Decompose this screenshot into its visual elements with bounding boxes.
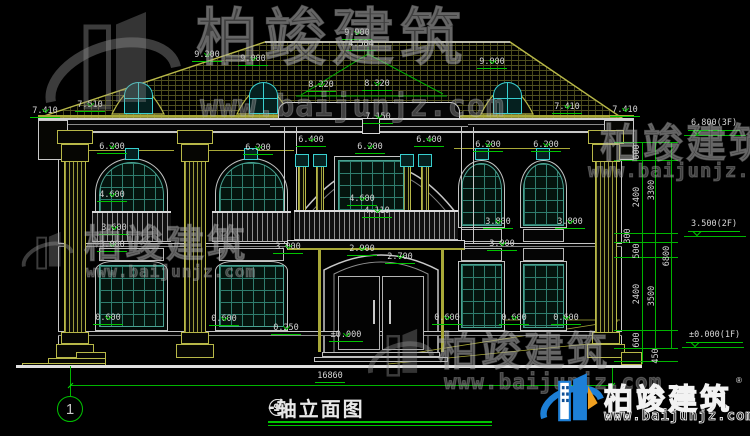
brand-watermark: 柏竣建筑 [600, 124, 750, 164]
axis-bubble: 1 [57, 396, 83, 422]
colonnette-capital [418, 154, 432, 167]
door-handle [389, 300, 391, 324]
dim-label: 500 [633, 243, 642, 258]
brand-watermark-icon [362, 324, 438, 390]
dim-label: 450 [652, 348, 661, 363]
dim-label: 2400 [633, 284, 642, 304]
spandrel-panel [523, 229, 564, 242]
dim-extension-line [614, 348, 678, 349]
overall-dim: 16860 [315, 372, 345, 383]
brand-watermark-icon [36, 2, 186, 137]
colonnette-shaft [316, 167, 324, 212]
dim-extension-line [684, 236, 746, 237]
dim-extension-line [614, 361, 678, 362]
right-step [621, 352, 642, 365]
pavilion-pilaster [461, 127, 462, 243]
brand-watermark: 柏竣建筑 [196, 8, 468, 70]
cad-elevation-drawing: 16860 1 1 - 9 轴立面图 柏竣建筑 www.baijunjz.com… [0, 0, 750, 436]
dim-label: 300 [624, 228, 633, 243]
column-capital [61, 144, 89, 162]
column-capital [181, 144, 209, 162]
title-underline [268, 421, 492, 423]
colonnette-capital [313, 154, 327, 167]
drawing-title: 1 - 9 轴立面图 [268, 393, 365, 422]
watermark-url: www.baijunjz.com [588, 162, 750, 181]
door-handle [373, 300, 375, 324]
axis-circle-end: 9 [269, 399, 286, 416]
dim-label: 6800 [663, 246, 672, 266]
column-shaft [595, 162, 617, 332]
colonnette-shaft [421, 167, 429, 212]
column-base [61, 332, 89, 344]
brand-watermark: 柏竣建筑 [438, 332, 610, 372]
brand-logo-url: www.baijunjz.com [604, 408, 750, 424]
title-underline-2 [268, 425, 492, 426]
spandrel-panel [523, 248, 564, 261]
colonnette-capital [295, 154, 309, 167]
keystone-bracket [125, 148, 139, 160]
axis-line [70, 366, 71, 397]
colonnette-capital [400, 154, 414, 167]
watermark-url: www.baijunjz.com [86, 264, 256, 280]
dim-label: 3500 [648, 286, 657, 306]
lower-window-glazing [461, 264, 502, 328]
dim-extension-line [614, 330, 678, 331]
dim-label: 600 [633, 332, 642, 347]
colonnette-shaft [298, 167, 306, 212]
brand-watermark: 柏竣建筑 [84, 226, 248, 264]
door-pilaster [318, 250, 321, 352]
dim-extension-line [682, 347, 744, 348]
brand-logo-icon [540, 368, 604, 434]
column-base [176, 344, 214, 358]
title-text: 轴立面图 [277, 393, 365, 422]
colonnette-shaft [403, 167, 411, 212]
brand-logo: 柏竣建筑 ® www.baijunjz.com [540, 368, 750, 436]
column-base [181, 332, 209, 344]
dim-label: 2400 [633, 187, 642, 207]
watermark-url: www.baijunjz.com [200, 92, 505, 122]
dim-label: 3300 [648, 180, 657, 200]
registered-mark-icon: ® [736, 376, 742, 385]
axis-number: 1 [66, 401, 74, 418]
brand-watermark-icon [14, 228, 80, 280]
